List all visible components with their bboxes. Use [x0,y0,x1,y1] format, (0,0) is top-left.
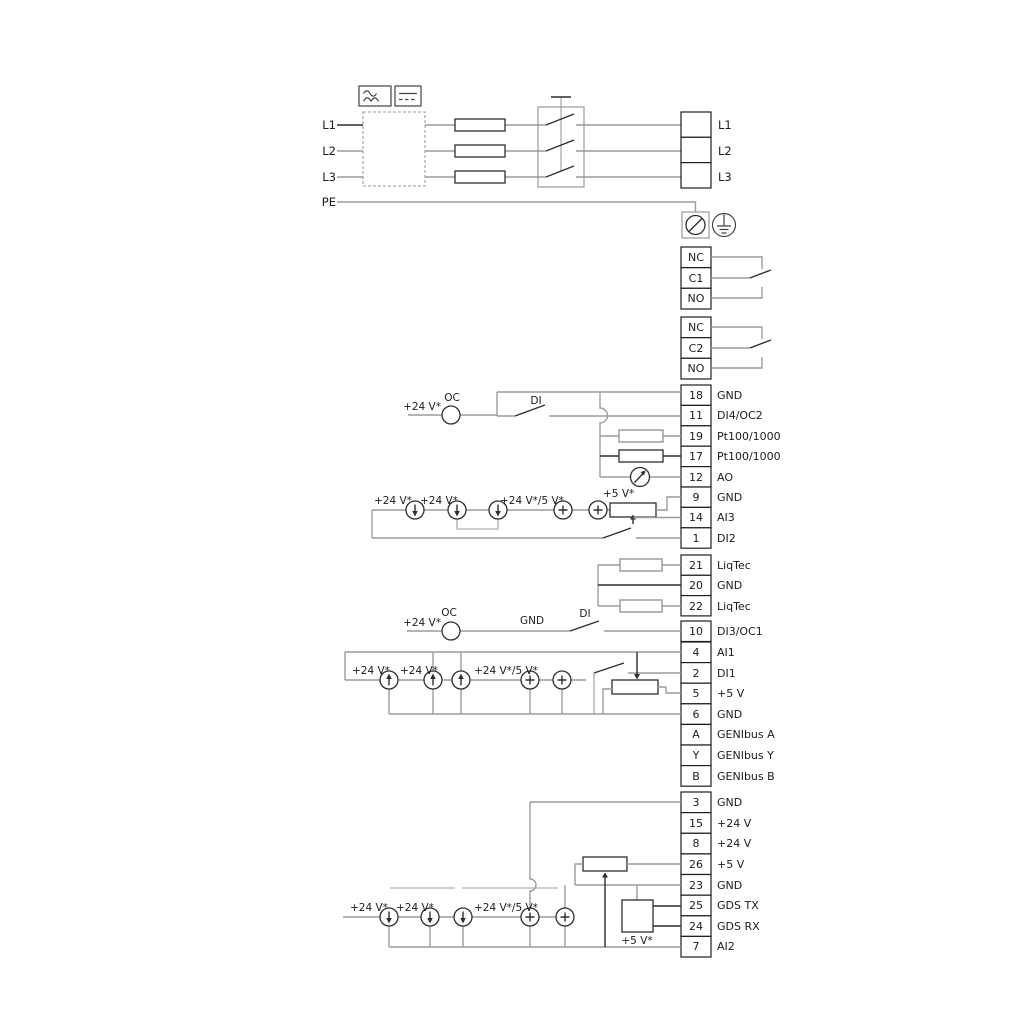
terminal-label: AI3 [717,511,735,524]
terminal-label: +5 V [717,687,745,700]
terminal-num: 24 [689,920,703,933]
terminal-label: GND [717,708,742,721]
filter-box [359,86,425,186]
liqtec-terminal-group: 21 LiqTec 20 GND 22 LiqTec [598,555,751,616]
output-label-l3: L3 [718,170,732,184]
terminal-num: Y [692,749,700,762]
di-switch-icon [570,621,599,631]
relay1-nc: NC [688,251,704,264]
di-switch-icon [603,528,631,538]
v24-label: +24 V* [352,665,390,677]
terminal-label: DI2 [717,532,736,545]
terminal-num: 23 [689,879,703,892]
pe-terminal [682,212,709,238]
di-label: DI [579,608,590,620]
terminal-num: A [692,728,700,741]
terminal-group-2: 4 AI1 2 DI1 5 +5 V 6 GND A GENIbus A Y G… [681,642,775,786]
terminal-label: +24 V [717,837,752,850]
terminal-num: 11 [689,409,703,422]
relay1-c1: C1 [689,272,704,285]
v24v5-label: +24 V*/5 V* [474,902,538,914]
terminal-num: 1 [693,532,700,545]
liqtec-sensor-icon [620,559,662,571]
v24-label: +24 V* [403,617,441,629]
sensor-bus [600,392,608,477]
voltage-source-icon [556,908,574,926]
input-label-pe: PE [322,195,336,209]
terminal-label: GND [717,579,742,592]
potentiometer [610,497,681,524]
pt100-sensors [600,430,681,462]
terminal-label: GND [717,491,742,504]
terminal-num: 8 [693,837,700,850]
terminal-label: GDS RX [717,920,760,933]
terminal-label: Pt100/1000 [717,430,781,443]
terminal-label: +24 V [717,817,752,830]
wiring-diagram: L1 L2 L3 PE [0,0,1024,1024]
oc-output-icon [442,406,460,424]
voltage-source-icon [553,671,571,689]
ai1-sensor-options: +24 V* +24 V* +24 V*/5 V* [345,652,681,714]
terminal-num: 9 [693,491,700,504]
power-input-section: L1 L2 L3 PE [322,86,736,238]
di-switch-icon [594,663,624,673]
input-label-l2: L2 [322,144,336,158]
terminal-label: GENIbus Y [717,749,774,762]
terminal-num: 12 [689,471,703,484]
terminal-num: B [692,770,700,783]
pe-wire [337,202,696,212]
earth-ground-icon [713,214,736,237]
relay1-block: NC C1 NO [681,247,771,309]
terminal-num: 21 [689,559,703,572]
terminal-num: 14 [689,511,703,524]
relay1-no: NO [688,292,705,305]
terminal-label: GND [717,796,742,809]
terminal-label: GENIbus B [717,770,775,783]
terminal-group-3: 3 GND 15 +24 V 8 +24 V 26 +5 V 23 GND 25… [681,792,760,957]
terminal-label: +5 V [717,858,745,871]
terminal-num: 19 [689,430,703,443]
fuse-l2 [455,145,505,157]
mains-terminal-block: L1 L2 L3 [681,112,732,188]
terminal-label: DI1 [717,667,736,680]
terminal-label: DI3/OC1 [717,625,763,638]
di-label: DI [530,395,541,407]
terminal-num: 4 [693,646,700,659]
terminal-label: GND [717,389,742,402]
input-label-l3: L3 [322,170,336,184]
output-label-l1: L1 [718,118,732,132]
terminal-label: GND [717,879,742,892]
terminal-label: LiqTec [717,559,751,572]
terminal-label: GDS TX [717,899,759,912]
terminal-num: 6 [693,708,700,721]
terminal-label: GENIbus A [717,728,775,741]
liqtec-sensor-icon [620,600,662,612]
terminal-num: 15 [689,817,703,830]
ai2-sensor-options: +24 V* +24 V* +24 V*/5 V* +5 V* [343,802,681,947]
v5-label: +5 V* [603,488,634,500]
gds-sensor: +5 V* [621,885,681,947]
current-source-icon [452,671,470,689]
ao-output [600,468,681,487]
relay2-nc: NC [688,321,704,334]
terminal-num: 25 [689,899,703,912]
wiring-diagram-svg: L1 L2 L3 PE [0,0,1024,1024]
pt100-sensor-icon [619,450,663,462]
terminal-num: 22 [689,600,703,613]
terminal-num: 17 [689,450,703,463]
relay2-c2: C2 [689,342,704,355]
relay2-no: NO [688,362,705,375]
terminal-num: 2 [693,667,700,680]
terminal-label: DI4/OC2 [717,409,763,422]
pt100-sensor-icon [619,430,663,442]
v24v5-label: +24 V*/5 V* [474,665,538,677]
oc-label: OC [441,607,457,619]
terminal-label: AO [717,471,733,484]
terminal-num: 18 [689,389,703,402]
v24-label: +24 V* [350,902,388,914]
input-label-l1: L1 [322,118,336,132]
terminal-num: 20 [689,579,703,592]
terminal-num: 3 [693,796,700,809]
v24-label: +24 V* [374,495,412,507]
terminal-label: LiqTec [717,600,751,613]
potentiometer [603,652,681,714]
terminal-num: 10 [689,625,703,638]
v24v5-label: +24 V*/5 V* [500,495,564,507]
voltage-source-icon [589,501,607,519]
v5-label: +5 V* [621,935,652,947]
v24-label: +24 V* [403,401,441,413]
v24-label: +24 V* [396,902,434,914]
current-source-icon [454,908,472,926]
terminal-num: 5 [693,687,700,700]
ac-wave-icon [364,98,379,102]
terminal-label: AI1 [717,646,735,659]
ai3-sensor-options: +24 V* +24 V* +24 V*/5 V* +5 V* [372,488,681,538]
output-label-l2: L2 [718,144,732,158]
main-switch [538,97,584,187]
v24-label: +24 V* [400,665,438,677]
terminal-label: AI2 [717,940,735,953]
terminal-group-1: 18 GND 11 DI4/OC2 19 Pt100/1000 17 Pt100… [681,385,781,548]
v24-label: +24 V* [420,495,458,507]
terminal-num: 26 [689,858,703,871]
fuse-l1 [455,119,505,131]
gnd-label: GND [520,615,544,627]
fuse-l3 [455,171,505,183]
terminal-num: 7 [693,940,700,953]
terminal-label: Pt100/1000 [717,450,781,463]
oc-output-icon [442,622,460,640]
oc-label: OC [444,392,460,404]
ac-symbol-icon [364,91,377,96]
relay2-block: NC C2 NO [681,317,771,379]
